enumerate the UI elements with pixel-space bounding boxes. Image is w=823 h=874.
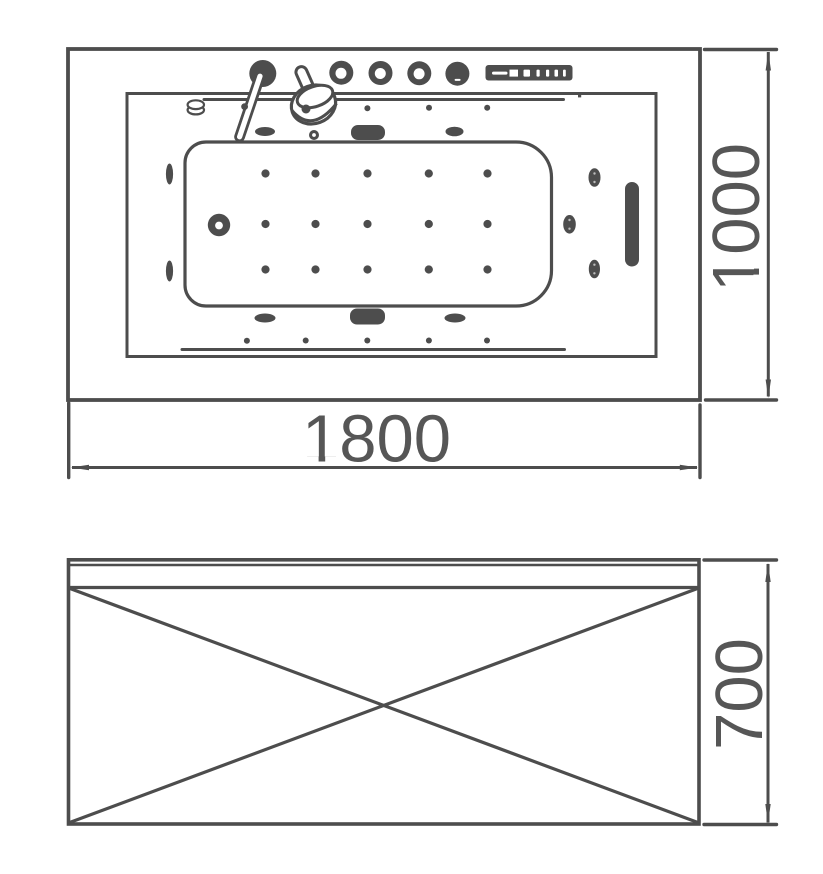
svg-text:1000: 1000 — [699, 143, 774, 292]
svg-text:1800: 1800 — [302, 402, 451, 477]
svg-text:700: 700 — [702, 638, 777, 750]
